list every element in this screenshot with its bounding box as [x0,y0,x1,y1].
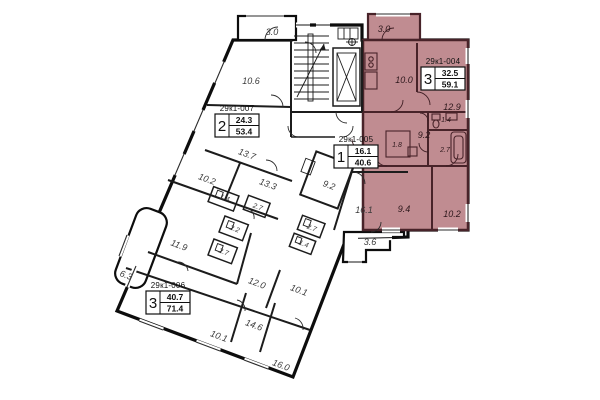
floor-plan-canvas: 3.0 10.6 13.7 10.2 13.3 1.4 2.7 2.2 2.7 … [0,0,600,400]
room-count: 3 [149,295,157,312]
total-area: 59.1 [442,80,459,90]
living-area: 16.1 [355,146,372,156]
apartment-info-005[interactable]: 29к1-005 1 16.1 40.6 [334,135,378,168]
apartment-info-004[interactable]: 29к1-004 3 32.5 59.1 [421,57,465,90]
room-label: 12.9 [443,102,461,112]
apartment-id: 29к1-007 [220,104,255,113]
living-area: 32.5 [442,68,459,78]
apartment-id: 29к1-004 [426,57,461,66]
room-label: 1.4 [441,117,451,124]
total-area: 53.4 [236,127,253,137]
living-area: 40.7 [167,292,184,302]
apartment-id: 29к1-006 [151,281,186,290]
room-label: 10.2 [443,209,461,219]
apartment-id: 29к1-005 [339,135,374,144]
room-count: 3 [424,71,432,88]
room-label: 10.6 [242,76,260,86]
total-area: 71.4 [167,304,184,314]
room-label: 9.4 [398,204,411,214]
room-count: 2 [218,118,226,135]
room-label: 1.8 [392,142,402,149]
room-count: 1 [337,149,345,166]
room-label: 10.0 [395,75,413,85]
room-label: 16.1 [355,205,373,215]
total-area: 40.6 [355,158,372,168]
room-label: 3.0 [266,27,279,37]
floor-plan-page: 3.0 10.6 13.7 10.2 13.3 1.4 2.7 2.2 2.7 … [0,0,600,400]
apartment-info-006[interactable]: 29к1-006 3 40.7 71.4 [146,281,190,314]
room-label: 2.7 [439,147,451,154]
room-label: 3.0 [378,24,391,34]
room-label: 3.6 [364,237,377,247]
apartment-info-007[interactable]: 29к1-007 2 24.3 53.4 [215,104,259,137]
living-area: 24.3 [236,115,253,125]
room-label: 9.2 [418,130,431,140]
balcony-004 [368,14,420,40]
